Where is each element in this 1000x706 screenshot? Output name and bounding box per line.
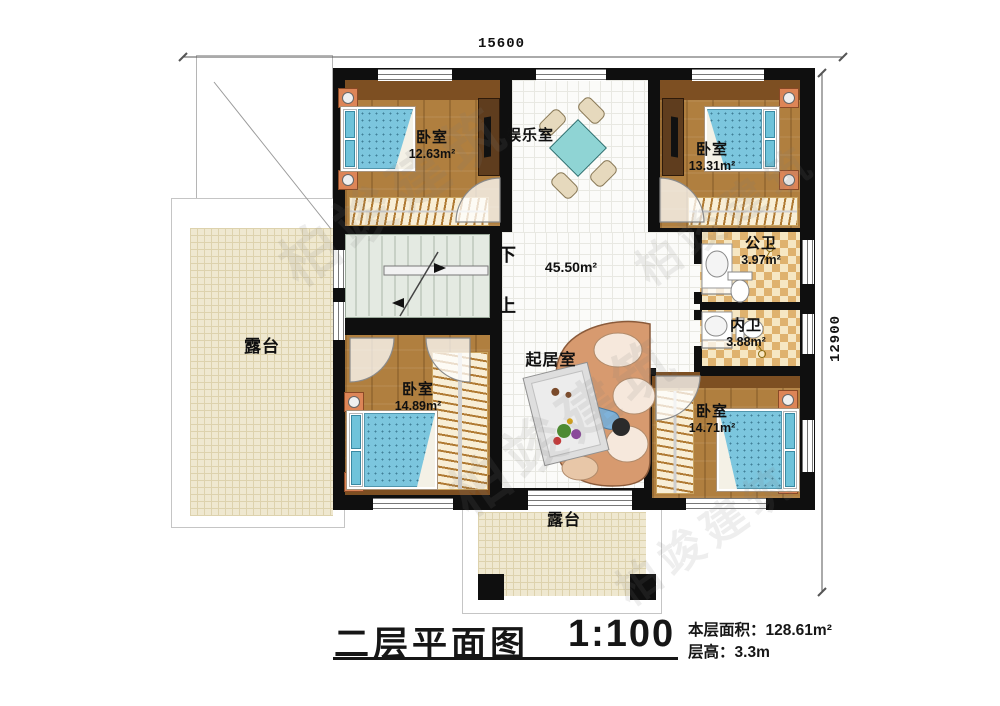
bed — [704, 106, 780, 172]
title-underline — [333, 657, 678, 660]
floor-area-line: 本层面积：128.61m² — [688, 620, 832, 642]
pillow — [765, 140, 775, 167]
stairwell — [345, 234, 490, 318]
room-living-upper — [502, 232, 700, 372]
room-living-lower — [502, 372, 644, 488]
headboard — [343, 109, 357, 169]
terrace-left-floor — [190, 228, 333, 516]
nightstand — [778, 390, 798, 410]
dimension-top: 15600 — [478, 36, 525, 52]
headboard — [763, 109, 777, 169]
stair-up-label: 上 — [498, 292, 516, 318]
floor-height-label: 层高： — [688, 644, 735, 661]
tv-monitor-icon — [484, 116, 491, 157]
wardrobe — [656, 390, 694, 494]
terrace-sliding-door — [528, 490, 632, 510]
title-info: 本层面积：128.61m² 层高：3.3m — [688, 620, 832, 665]
dimension-right: 12900 — [828, 315, 844, 362]
bedroom-top-left-headwall — [345, 80, 500, 100]
pillow — [351, 451, 361, 485]
wardrobe — [349, 197, 489, 226]
terrace-column — [630, 574, 656, 600]
room-entertainment — [512, 80, 648, 232]
bed — [346, 410, 438, 490]
window — [373, 498, 453, 510]
floor-plan-canvas: 柏竣建筑 柏竣建筑 柏竣建筑 柏竣建筑 卧室 12.63m² 娱乐室 卧室 13… — [0, 0, 1000, 706]
pillow — [345, 140, 355, 167]
pillow — [351, 415, 361, 449]
stair-down-label: 下 — [498, 241, 516, 267]
pillow — [785, 451, 795, 487]
window — [536, 69, 606, 81]
nightstand — [344, 392, 364, 412]
plan-scale: 1:100 — [568, 613, 675, 656]
window — [692, 69, 764, 81]
window — [802, 314, 814, 354]
floor-area-value: 128.61m² — [766, 622, 832, 639]
window — [802, 240, 814, 284]
wall-stub — [694, 310, 702, 320]
desk — [478, 98, 500, 176]
bed — [716, 408, 800, 492]
wall-stub — [700, 368, 804, 376]
wardrobe — [688, 197, 798, 226]
floor-height-line: 层高：3.3m — [688, 642, 832, 664]
pillow — [765, 111, 775, 138]
nightstand — [779, 88, 799, 108]
window — [333, 250, 345, 288]
room-public-bathroom — [700, 232, 800, 302]
wall-stub — [644, 368, 656, 376]
floor-area-label: 本层面积： — [688, 622, 766, 639]
window — [333, 302, 345, 340]
pillow — [345, 111, 355, 138]
floor-height-value: 3.3m — [735, 644, 770, 661]
bed — [340, 106, 416, 172]
tv-monitor-icon — [671, 116, 678, 157]
window — [802, 420, 814, 472]
nightstand — [338, 88, 358, 108]
wall-stub — [694, 292, 702, 304]
wall-stub — [694, 232, 702, 264]
nightstand — [338, 170, 358, 190]
desk — [662, 98, 684, 176]
room-inner-bathroom — [700, 310, 800, 366]
headboard — [349, 413, 363, 487]
window — [378, 69, 452, 81]
wardrobe — [432, 352, 488, 490]
terrace-column — [478, 574, 504, 600]
headboard — [783, 411, 797, 489]
nightstand — [779, 170, 799, 190]
pillow — [785, 413, 795, 449]
window — [686, 498, 766, 510]
